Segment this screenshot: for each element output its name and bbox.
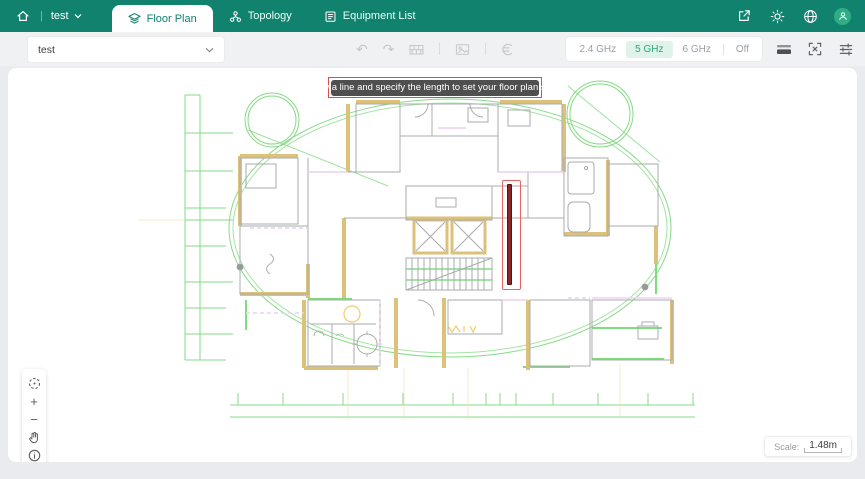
topology-icon <box>229 10 242 23</box>
floor-select-value: test <box>38 44 55 56</box>
floor-plan-canvas[interactable]: Draw a line and specify the length to se… <box>8 68 857 462</box>
avatar[interactable] <box>834 8 851 25</box>
floor-select[interactable]: test <box>28 37 224 62</box>
pan-hand-icon[interactable] <box>22 428 46 446</box>
set-scale-tool-icon[interactable] <box>501 43 514 56</box>
plan-toolbar: test ↶ ↷ 2.4 GHz 5 GHz 6 GHz <box>0 32 865 66</box>
reset-view-icon[interactable] <box>22 374 46 392</box>
app-header: | test Floor Plan Topology Equipment Lis… <box>0 0 865 32</box>
band-2g4[interactable]: 2.4 GHz <box>570 41 625 58</box>
display-settings-icon[interactable] <box>837 40 855 58</box>
band-selector: 2.4 GHz 5 GHz 6 GHz Off <box>566 37 762 61</box>
tab-label: Equipment List <box>343 10 416 22</box>
equipment-list-icon <box>324 10 337 23</box>
tab-topology[interactable]: Topology <box>213 0 308 32</box>
theme-brightness-icon[interactable] <box>768 7 786 25</box>
export-icon[interactable] <box>735 7 753 25</box>
layers-icon <box>128 12 141 25</box>
floor-plan-drawing <box>8 68 857 462</box>
band-5g[interactable]: 5 GHz <box>626 41 672 58</box>
band-6g[interactable]: 6 GHz <box>674 41 720 58</box>
view-tools: + − <box>22 369 46 462</box>
project-name: test <box>51 10 69 22</box>
band-off[interactable]: Off <box>727 41 758 58</box>
chevron-down-icon <box>205 47 214 53</box>
scale-value-input[interactable]: 1.48m <box>804 440 842 453</box>
main-tabs: Floor Plan Topology Equipment List <box>112 0 432 32</box>
scale-label: Scale: <box>774 442 799 452</box>
language-globe-icon[interactable] <box>801 7 819 25</box>
tab-equipment-list[interactable]: Equipment List <box>308 0 432 32</box>
tab-label: Floor Plan <box>147 13 197 25</box>
upload-image-icon[interactable] <box>455 43 470 56</box>
zoom-out-button[interactable]: − <box>22 410 46 428</box>
toolbar-divider <box>485 43 486 55</box>
tab-label: Topology <box>248 10 292 22</box>
draw-wall-icon[interactable] <box>409 43 424 56</box>
heatmap-legend-icon[interactable] <box>775 40 793 58</box>
header-divider: | <box>40 10 43 22</box>
scale-instruction-tooltip: Draw a line and specify the length to se… <box>331 80 539 96</box>
project-switcher[interactable]: test <box>51 10 82 22</box>
toolbar-divider <box>439 43 440 55</box>
scale-readout: Scale: 1.48m <box>764 436 852 457</box>
fullscreen-exit-icon[interactable] <box>806 40 824 58</box>
undo-icon[interactable]: ↶ <box>356 42 368 56</box>
zoom-in-button[interactable]: + <box>22 392 46 410</box>
redo-icon[interactable]: ↷ <box>383 42 395 56</box>
home-icon[interactable] <box>14 7 32 25</box>
info-icon[interactable] <box>22 446 46 462</box>
tab-floor-plan[interactable]: Floor Plan <box>112 5 213 32</box>
drawn-scale-line[interactable] <box>507 184 512 285</box>
chevron-down-icon <box>74 13 82 19</box>
band-divider <box>723 44 724 55</box>
